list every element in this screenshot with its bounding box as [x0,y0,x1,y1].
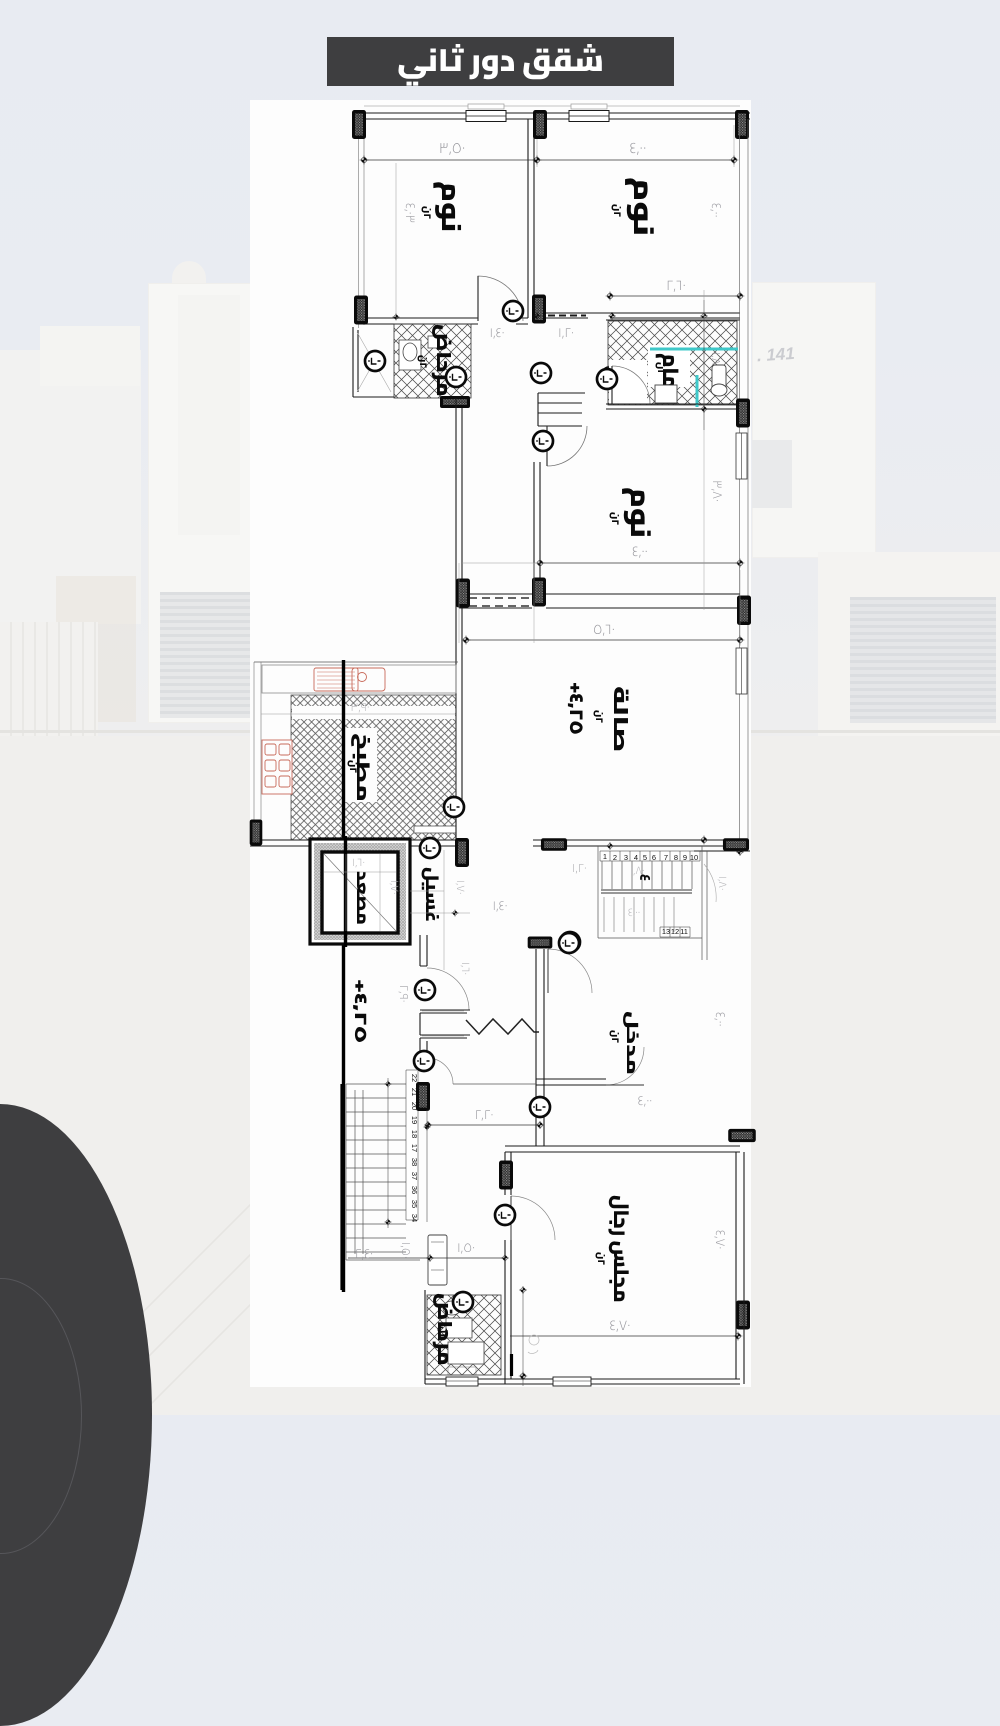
svg-text:19: 19 [410,1116,419,1124]
svg-text:٢ن: ٢ن [608,204,627,217]
svg-text:١,٧٠: ١,٧٠ [384,880,404,894]
svg-text:8: 8 [674,853,678,862]
svg-text:مدخل: مدخل [618,1011,648,1075]
svg-text:٣,٩٠: ٣,٩٠ [350,695,369,718]
svg-text:36: 36 [410,1186,419,1194]
svg-text:1: 1 [603,852,607,861]
svg-text:٤,٠٠: ٤,٠٠ [632,538,648,564]
svg-text:38: 38 [410,1158,419,1166]
svg-text:22: 22 [410,1074,419,1082]
svg-text:٢ن: ٢ن [344,760,363,773]
svg-text:١,٨٠: ١,٨٠ [630,861,644,881]
svg-text:٤,٠٣: ٤,٠٣ [398,203,422,223]
svg-text:٢ن: ٢ن [606,1030,625,1043]
svg-text:١,٢٠: ١,٢٠ [572,856,587,879]
svg-text:٣,٥٠: ٣,٥٠ [439,133,466,162]
svg-text:13: 13 [662,927,670,936]
svg-text:١,٦٠: ١,٦٠ [352,853,365,873]
svg-text:٢ن: ٢ن [434,1326,453,1339]
svg-text:٢,٢٠: ٢,٢٠ [475,1103,494,1127]
svg-text:18: 18 [410,1130,419,1138]
svg-text:٤,٧٠: ٤,٧٠ [610,1312,631,1338]
svg-text:٤,٠٠: ٤,٠٠ [708,1012,732,1027]
svg-text:١,٢٠: ١,٢٠ [558,321,574,345]
svg-text:٢,٤٠: ٢,٤٠ [355,1242,373,1266]
svg-text:6: 6 [652,853,656,862]
svg-text:٢ن: ٢ن [592,1252,611,1265]
svg-text:9: 9 [683,853,687,862]
svg-text:17: 17 [410,1144,419,1152]
svg-text:+٤,٢٥: +٤,٢٥ [345,979,377,1043]
svg-text:2: 2 [613,853,617,862]
svg-text:٤,٠٠: ٤,٠٠ [630,133,647,162]
svg-text:١,٥٠: ١,٥٠ [395,1242,418,1259]
svg-text:10: 10 [690,853,698,862]
svg-text:3: 3 [624,853,628,862]
svg-text:٥,٦٠: ٥,٦٠ [593,616,615,642]
svg-text:٢,٦٠: ٢,٦٠ [666,272,686,298]
svg-text:٢,٩٠: ٢,٩٠ [393,985,416,1002]
svg-text:٤,٠٠: ٤,٠٠ [638,1089,653,1113]
svg-text:٤,٠٠: ٤,٠٠ [628,903,640,923]
svg-text:35: 35 [410,1200,419,1208]
svg-text:12: 12 [671,927,679,936]
svg-text:١,٦٠: ١,٦٠ [455,962,475,975]
svg-text:٢ن: ٢ن [590,710,609,723]
svg-text:+٤,٢٥: +٤,٢٥ [559,682,594,735]
svg-text:37: 37 [410,1172,419,1180]
svg-text:٤,٧٠: ٤,٧٠ [708,1230,732,1249]
svg-text:٢ن: ٢ن [652,362,671,375]
svg-text:١,٧٠: ١,٧٠ [450,880,470,894]
svg-text:١,٤٠: ١,٤٠ [492,894,507,918]
svg-text:مجلس رجال: مجلس رجال [602,1195,642,1303]
svg-text:٢ن: ٢ن [414,355,433,368]
svg-text:7: 7 [664,853,668,862]
svg-text:٤,٠٠: ٤,٠٠ [704,203,728,218]
svg-text:١,٤٠: ١,٤٠ [489,321,504,345]
svg-text:٢ن: ٢ن [606,512,625,525]
svg-text:34: 34 [410,1214,419,1222]
svg-text:١,٨٠: ١,٨٠ [712,876,732,890]
svg-text:٣,٨٠: ٣,٨٠ [705,480,729,502]
svg-text:مصعد: مصعد [347,871,379,925]
svg-text:11: 11 [680,927,688,936]
svg-text:١,٥٠: ١,٥٠ [457,1236,475,1260]
